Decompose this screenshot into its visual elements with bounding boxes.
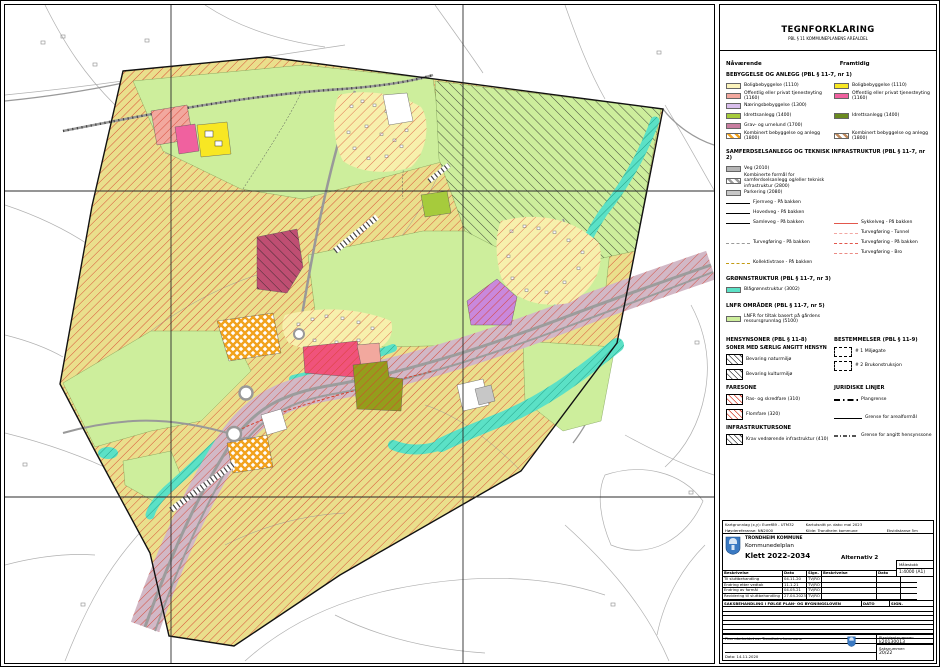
legend-label: Turvegføring - Tunnel	[861, 230, 909, 235]
title-block-map-info: Kartgrunnlag (x,y): Euref89 - UTM32 Høyd…	[723, 521, 933, 534]
legend-label: Plangrense	[861, 397, 886, 402]
legend-label: Sykkelveg - På bakken	[861, 220, 912, 225]
swatch-bevaring-natur	[726, 354, 743, 365]
swatch-naering	[726, 103, 741, 109]
legend-label: # 1 Miljøgate	[855, 349, 886, 354]
legend-label: Fjernveg - På bakken	[753, 200, 801, 205]
map-basis: Kartgrunnlag (x,y): Euref89 - UTM32	[725, 522, 806, 528]
title-block: Kartgrunnlag (x,y): Euref89 - UTM32 Høyd…	[722, 520, 934, 661]
height-ref: Høydereferanse: NN2000	[725, 528, 806, 534]
trondheim-logo	[725, 536, 741, 555]
box-brukonstruksjon	[834, 361, 852, 371]
line-hovedveg	[726, 213, 750, 214]
swatch-bolig-now	[726, 83, 741, 89]
bestemmelser-column: BESTEMMELSER (PBL § 11-9) # 1 Miljøgate …	[834, 332, 932, 449]
legend-label: Kombinerte formål for samferdselsanlegg …	[744, 173, 834, 189]
scale-box: Målestokk 1:4000 (A1)	[896, 560, 933, 577]
plan-map-svg	[5, 5, 714, 663]
col-now-label: Nåværende	[726, 61, 762, 67]
sec8-heading: BESTEMMELSER (PBL § 11-9)	[834, 337, 932, 343]
col-future-label: Framtidig	[840, 61, 870, 67]
rev-cell: 27.04.2023	[783, 594, 807, 600]
legend-label: Idrettsanlegg (1400)	[852, 113, 899, 118]
legend-label: Kombinert bebyggelse og anlegg (1800)	[852, 131, 932, 142]
legend-label: Samleveg - På bakken	[753, 220, 804, 225]
plan-date: Dato: 14.11.2020	[725, 652, 876, 659]
swatch-lnfr	[726, 316, 741, 322]
line-turveg-now	[726, 243, 750, 244]
legend-label: Boligbebyggelse (1110)	[852, 83, 907, 88]
municipality-name: TRONDHEIM KOMMUNE	[745, 536, 803, 541]
swatch-bolig-future	[834, 83, 849, 89]
swatch-kombinert-future	[834, 133, 849, 139]
case-number-value: 20/22	[879, 651, 931, 656]
legend-label: Boligbebyggelse (1110)	[744, 83, 799, 88]
legend-label: Flomfare (320)	[746, 412, 780, 417]
legend-label: Veg (2010)	[744, 166, 769, 171]
legend-header: TEGNFORKLARING PBL § 11 KOMMUNEPLANENS A…	[720, 5, 936, 51]
blaagronn-pond	[98, 447, 118, 459]
sec2-items: Veg (2010) Kombinerte formål for samferd…	[726, 164, 930, 268]
line-fjernveg	[726, 203, 750, 204]
swatch-infrastruktur	[726, 434, 743, 445]
legend-label: Idrettsanlegg (1400)	[744, 113, 791, 118]
swatch-ras-skred	[726, 394, 743, 405]
legend-label: Grense for arealformål	[865, 415, 917, 420]
legend-label: Krav vedrørende infrastruktur (410)	[746, 437, 828, 442]
legend-subtitle: PBL § 11 KOMMUNEPLANENS AREALDEL	[720, 36, 936, 41]
line-turveg-tunnel	[834, 233, 858, 234]
equidistance: Ekvidistanse 5m	[887, 528, 931, 534]
trondheim-logo-small	[847, 636, 856, 647]
swatch-parkering	[726, 190, 741, 196]
rev-cell: TV/RO	[807, 594, 822, 600]
legend-label: Parkering (2080)	[744, 190, 782, 195]
legend-label: Kombinert bebyggelse og anlegg (1800)	[744, 131, 834, 142]
sec1-heading: BEBYGGELSE OG ANLEGG (PBL § 11-7, nr 1)	[726, 72, 930, 78]
sec9-heading: JURIDISKE LINJER	[834, 385, 932, 391]
legend-label: Turvegføring - Bro	[861, 250, 902, 255]
map-panel	[4, 4, 715, 664]
plan-document: TEGNFORKLARING PBL § 11 KOMMUNEPLANENS A…	[0, 0, 940, 667]
sec4-heading: LNFR OMRÅDER (PBL § 11-7, nr 5)	[726, 303, 930, 309]
legend-label: Grense for angitt hensynssone	[861, 433, 932, 438]
legend-label: Kollektivtrase - På bakken	[753, 260, 812, 265]
sec5-heading: HENSYNSONER (PBL § 11-8)	[726, 337, 834, 343]
legend-label: Hovedveg - På bakken	[753, 210, 804, 215]
line-plangrense	[834, 399, 858, 400]
sec5-subheading: SONER MED SÆRLIG ANGITT HENSYN	[726, 346, 834, 351]
map-source: Kilde: Trondheim kommune	[806, 528, 887, 534]
hensynsoner-column: HENSYNSONER (PBL § 11-8) SONER MED SÆRLI…	[726, 332, 834, 449]
swatch-flomfare	[726, 409, 743, 420]
line-sykkelveg	[834, 223, 858, 224]
legend-label: LNFR for tiltak basert på gårdens ressur…	[744, 314, 834, 325]
legend-label: Bevaring naturmiljø	[746, 357, 791, 362]
swatch-blaagronn	[726, 287, 741, 293]
legend-panel: TEGNFORKLARING PBL § 11 KOMMUNEPLANENS A…	[719, 4, 937, 664]
legend-label: Næringsbebyggelse (1300)	[744, 103, 807, 108]
title-block-header: TRONDHEIM KOMMUNE Kommunedelplan Klett 2…	[723, 534, 933, 571]
plan-name: Klett 2022-2034	[745, 551, 810, 560]
scale-value: 1:4000 (A1)	[897, 569, 933, 576]
swatch-offentlig-now	[726, 93, 741, 99]
line-samleveg	[726, 223, 750, 224]
case-date-header: DATO	[862, 601, 890, 606]
sec1-items: Boligbebyggelse (1110) Boligbebyggelse (…	[726, 81, 930, 141]
sec7-heading: INFRASTRUKTURSONE	[726, 425, 834, 431]
line-turveg-bakken	[834, 243, 858, 244]
box-miljogate	[834, 347, 852, 357]
swatch-offentlig-future	[834, 93, 849, 99]
swatch-grav	[726, 123, 741, 129]
legend-label: Ras- og skredfare (310)	[746, 397, 800, 402]
legend-label: Turvegføring - På bakken	[861, 240, 918, 245]
line-turveg-bro	[834, 253, 858, 254]
legend-label: Offentlig eller privat tjenesteyting (11…	[744, 91, 834, 102]
legend-label: Bevaring kulturmiljø	[746, 372, 792, 377]
title-block-footer: Plan utarbeidet av: Trondheim kommune Da…	[723, 633, 933, 660]
swatch-veg	[726, 166, 741, 172]
swatch-samferdsel-kombinert	[726, 178, 741, 184]
plan-alternative: Alternativ 2	[841, 555, 878, 561]
legend-label: Blågrønnstruktur (3002)	[744, 287, 800, 292]
swatch-idrett-future	[834, 113, 849, 119]
legend-label: # 2 Brukonstruksjon	[855, 363, 902, 368]
prepared-by: Plan utarbeidet av: Trondheim kommune	[725, 636, 802, 641]
case-heading: SAKSBEHANDLING I FØLGE PLAN- OG BYGNINGS…	[723, 601, 862, 606]
plan-type: Kommunedelplan	[745, 543, 794, 549]
legend-label: Grav- og urnelund (1700)	[744, 123, 802, 128]
rev-cell: Revidering til sluttbehandling	[723, 594, 783, 600]
sec3-heading: GRØNNSTRUKTUR (PBL § 11-7, nr 3)	[726, 276, 930, 282]
line-hensynssone-grense	[834, 435, 858, 436]
legend-label: Offentlig eller privat tjenesteyting (11…	[852, 91, 932, 102]
legend-title: TEGNFORKLARING	[720, 25, 936, 35]
sec2-heading: SAMFERDSELSANLEGG OG TEKNISK INFRASTRUKT…	[726, 149, 930, 161]
line-kollektivtrase	[726, 263, 750, 264]
swatch-idrett-now	[726, 113, 741, 119]
legend-label: Turvegføring - På bakken	[753, 240, 810, 245]
swatch-kombinert-now	[726, 133, 741, 139]
case-sign-header: SIGN.	[890, 601, 917, 606]
swatch-bevaring-kultur	[726, 369, 743, 380]
scale-label: Målestokk	[897, 561, 933, 569]
line-arealformaal	[834, 418, 862, 419]
sec6-heading: FARESONE	[726, 385, 834, 391]
